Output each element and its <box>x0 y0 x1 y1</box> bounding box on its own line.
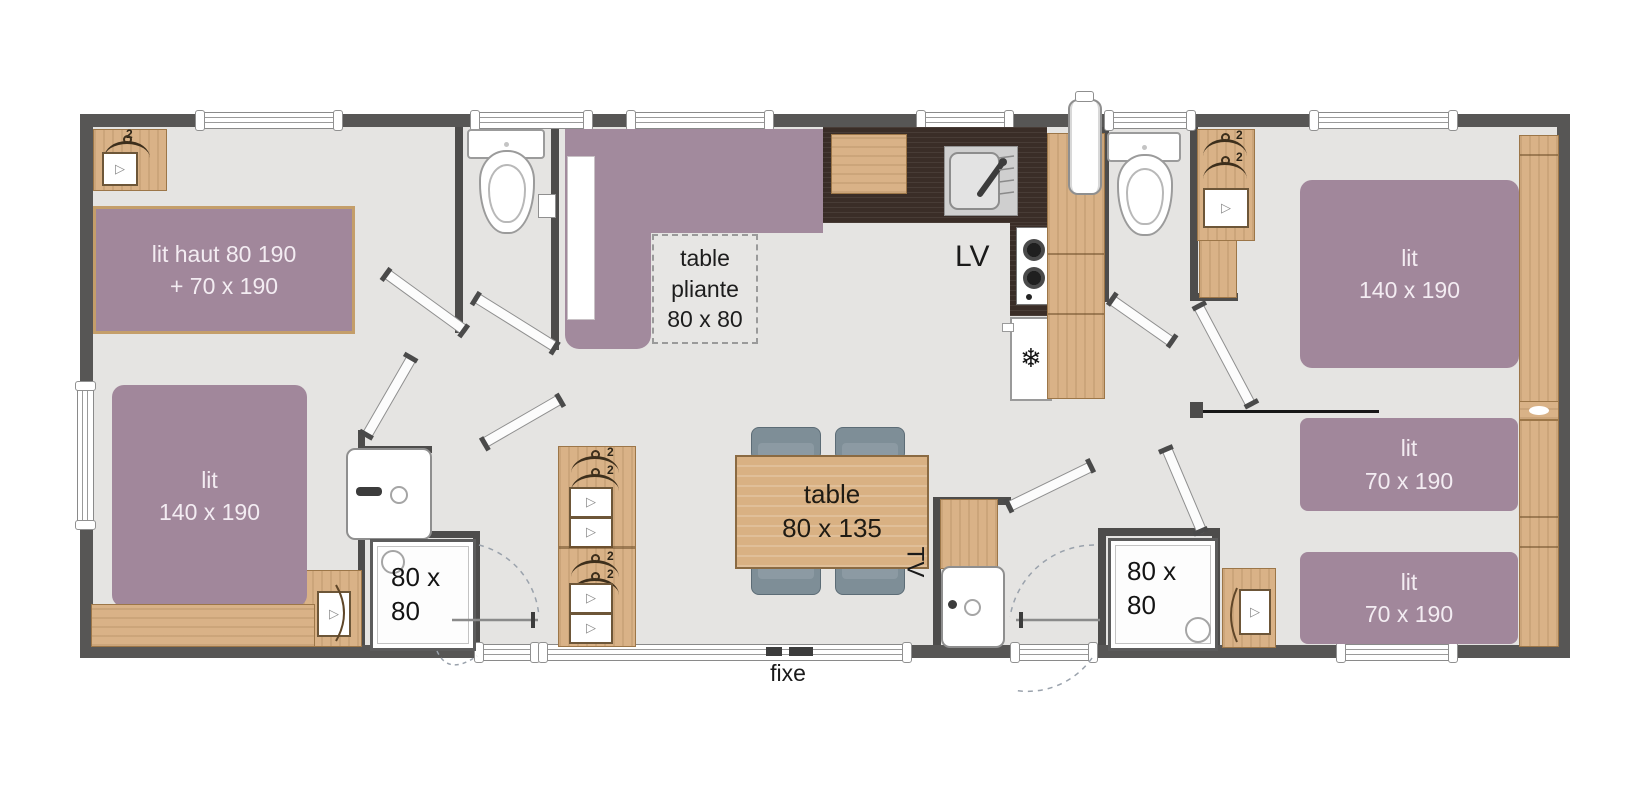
window-top-1 <box>198 112 340 129</box>
shower-tray: 80 x 80 <box>1108 538 1218 651</box>
partition-stub <box>1190 402 1203 418</box>
hanger-capacity: 2 <box>1236 128 1243 142</box>
nightstand <box>1519 401 1559 420</box>
bunk-bed: lit haut 80 190 + 70 x 190 <box>93 206 355 334</box>
drawer-icon <box>1203 188 1249 228</box>
wall-shower2-left <box>1098 528 1106 645</box>
shower-size-label: 80 x 80 <box>391 561 440 629</box>
door-stop <box>538 194 556 218</box>
dishwasher-label: LV <box>955 240 989 274</box>
bed-label: lit <box>1401 242 1418 274</box>
knob <box>1529 406 1549 415</box>
wall-wc1-right <box>551 127 559 350</box>
drawer-icon <box>569 487 613 518</box>
bedside-cabinet <box>1222 568 1276 648</box>
entry-door <box>1013 644 1095 661</box>
water-heater-icon <box>1068 99 1102 195</box>
burner-icon <box>1023 239 1045 261</box>
kitchen-sink-basin <box>949 152 1000 210</box>
window-top-3 <box>629 112 771 129</box>
tap-icon <box>948 600 957 609</box>
drawer-icon <box>569 517 613 548</box>
tv-label: TV <box>900 547 928 578</box>
wardrobe: 2 2 <box>1197 129 1255 241</box>
window-top-bedroom-right <box>1312 112 1455 129</box>
hanger-capacity: 2 <box>607 549 614 563</box>
bed-label: 70 x 190 <box>1365 465 1453 497</box>
shower-tray: 80 x 80 <box>370 539 476 651</box>
shower-size-label: 80 x 80 <box>1127 555 1176 623</box>
drain-icon <box>964 599 981 616</box>
bay-window-slider-mark <box>766 647 782 656</box>
fridge-handle <box>1002 323 1014 332</box>
cabinet-column <box>1199 240 1237 298</box>
bed-label: lit <box>201 464 218 496</box>
bed-label: lit <box>1401 432 1418 464</box>
window-left-wall <box>77 384 94 527</box>
bay-window-slider-mark <box>789 647 813 656</box>
wall-wc1-left <box>455 127 463 333</box>
bed-label: 140 x 190 <box>159 496 260 528</box>
fixed-window-label: fixe <box>743 660 833 687</box>
single-bed: lit 70 x 190 <box>1300 418 1518 511</box>
window-top-2 <box>473 112 590 129</box>
folding-table-label: 80 x 80 <box>667 304 742 334</box>
folding-table: table pliante 80 x 80 <box>652 234 758 344</box>
dining-table-label: table <box>804 478 860 512</box>
window-top-wc2 <box>1107 112 1193 129</box>
hanger-icon <box>1203 162 1247 179</box>
bathroom-sink-icon <box>941 566 1005 648</box>
tap-icon <box>356 487 382 496</box>
headboard-panel <box>1519 135 1559 403</box>
fridge-icon: ❄ <box>1010 317 1052 401</box>
hall-wardrobe: 2 2 2 2 <box>558 446 636 647</box>
headboard-panel <box>1519 420 1559 647</box>
single-bed: lit 70 x 190 <box>1300 552 1518 644</box>
bed-label: lit <box>1401 566 1418 598</box>
hanger-capacity: 2 <box>607 445 614 459</box>
drawer-icon <box>569 583 613 614</box>
kitchen-cabinet <box>831 134 907 194</box>
window-bottom-twin <box>1339 644 1455 661</box>
double-bed: lit 140 x 190 <box>1300 180 1519 368</box>
drain-icon <box>390 486 408 504</box>
wardrobe: 2 <box>93 129 167 191</box>
water-heater-cap <box>1075 91 1094 102</box>
hob-knob <box>1026 294 1032 300</box>
sofa-fold-panel <box>567 156 595 320</box>
hanger-capacity: 2 <box>1236 150 1243 164</box>
folding-table-label: pliante <box>671 274 739 304</box>
drawer-icon <box>102 152 138 186</box>
drawer-icon <box>569 613 613 644</box>
double-bed: lit 140 x 190 <box>112 385 307 607</box>
drawer-icon <box>317 591 351 637</box>
partition-twin-room <box>1197 410 1379 413</box>
bed-label: 140 x 190 <box>1359 274 1460 306</box>
hanger-capacity: 2 <box>607 463 614 477</box>
floor-plan: 2 lit haut 80 190 + 70 x 190 table plian… <box>0 0 1642 800</box>
window-bottom-small <box>477 644 537 661</box>
bunk-bed-label: lit haut 80 190 <box>152 238 297 270</box>
bathroom-sink-icon <box>346 448 432 540</box>
drawer-icon <box>1239 589 1271 635</box>
bench <box>91 604 315 647</box>
snowflake-icon: ❄ <box>1020 344 1042 374</box>
burner-icon <box>1023 267 1045 289</box>
hanger-capacity: 2 <box>607 567 614 581</box>
tv-cabinet <box>940 499 998 569</box>
door-swing-arc <box>1013 658 1092 691</box>
folding-table-label: table <box>680 243 730 273</box>
bunk-bed-label: + 70 x 190 <box>170 270 278 302</box>
bed-label: 70 x 190 <box>1365 598 1453 630</box>
dining-table-label: 80 x 135 <box>782 512 882 546</box>
drain-icon <box>1185 617 1211 643</box>
